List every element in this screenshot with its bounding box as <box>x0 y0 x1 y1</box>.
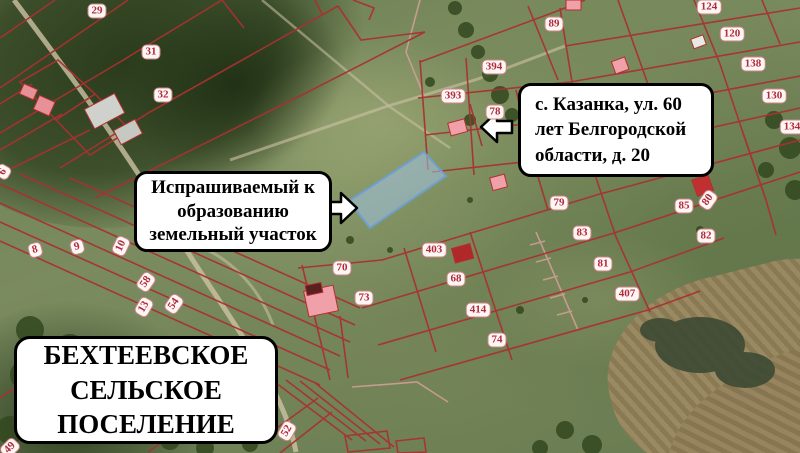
callout-line: земельный участок <box>137 223 329 247</box>
callout-line: области, д. 20 <box>535 143 711 169</box>
parcel-label-414: 414 <box>466 303 491 318</box>
parcel-label-79: 79 <box>550 196 569 211</box>
callout-line: с. Казанка, ул. 60 <box>535 92 711 118</box>
parcel-label-403: 403 <box>422 243 447 258</box>
callout-line: БЕХТЕЕВСКОЕ <box>17 338 275 373</box>
parcel-label-74: 74 <box>488 333 507 348</box>
parcel-label-130: 130 <box>762 89 787 104</box>
pond-area <box>640 317 775 388</box>
callout-line: Испрашиваемый к <box>137 176 329 200</box>
parcel-label-31: 31 <box>142 45 161 60</box>
settlement-callout: БЕХТЕЕВСКОЕ СЕЛЬСКОЕ ПОСЕЛЕНИЕ <box>14 336 278 444</box>
parcel-label-393: 393 <box>441 89 466 104</box>
parcel-label-89: 89 <box>545 17 564 32</box>
parcel-label-81: 81 <box>594 257 613 272</box>
callout-line: СЕЛЬСКОЕ <box>17 373 275 408</box>
parcel-label-394: 394 <box>482 60 507 75</box>
requested-parcel-callout: Испрашиваемый к образованию земельный уч… <box>134 171 332 252</box>
parcel-label-29: 29 <box>88 4 107 19</box>
highlighted-parcel <box>349 152 446 228</box>
parcel-label-73: 73 <box>355 291 374 306</box>
parcel-label-70: 70 <box>333 261 352 276</box>
parcel-label-134: 134 <box>780 120 800 135</box>
parcel-label-32: 32 <box>154 88 173 103</box>
parcel-label-83: 83 <box>573 226 592 241</box>
parcel-label-78: 78 <box>486 105 505 120</box>
parcel-label-120: 120 <box>720 27 745 42</box>
parcel-label-138: 138 <box>741 57 766 72</box>
callout-line: лет Белгородской <box>535 117 711 143</box>
satellite-map: 29 31 32 6 8 9 10 58 13 54 49 52 70 73 4… <box>0 0 800 453</box>
parcel-label-82: 82 <box>697 229 716 244</box>
parcel-label-407: 407 <box>615 287 640 302</box>
callout-line: образованию <box>137 200 329 224</box>
parcel-label-68: 68 <box>447 272 466 287</box>
address-callout: с. Казанка, ул. 60 лет Белгородской обла… <box>518 83 714 177</box>
parcel-label-85: 85 <box>675 199 694 214</box>
parcel-label-124: 124 <box>697 0 722 15</box>
callout-line: ПОСЕЛЕНИЕ <box>17 407 275 442</box>
